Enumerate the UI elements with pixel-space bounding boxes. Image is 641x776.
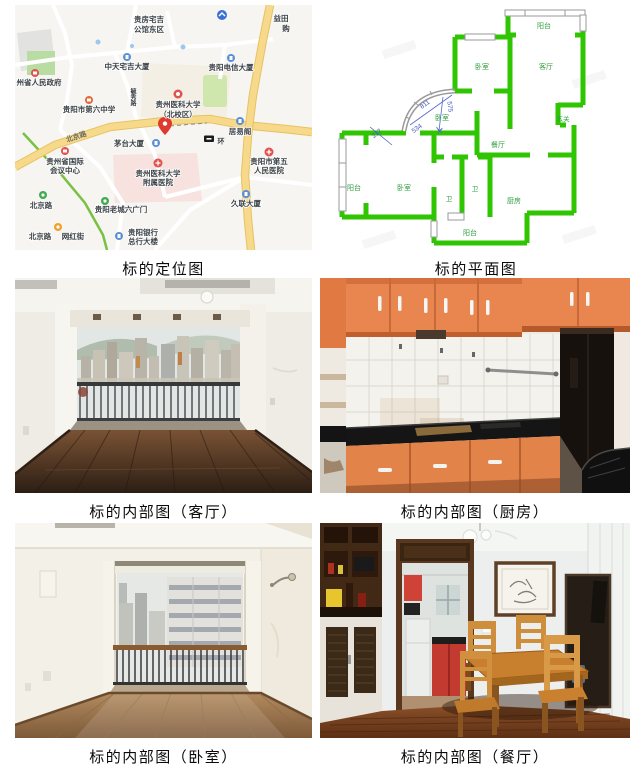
dining-room-photo [320,523,630,738]
map-label: 人民医院 [254,165,284,175]
map-label: 久联大厦 [230,198,261,208]
room-label: 卧室 [435,113,449,122]
figure-living-room: 标的内部图（客厅） [15,278,312,522]
lower-cabinets [346,436,560,493]
floorplan-image: 811 575 534 217 阳台 卧室 客厅 玄关 卧室 餐厅 阳台 卧室 … [322,5,630,250]
left-cabinet-wall [320,523,382,723]
hanging-coat [591,581,608,624]
room-label: 阳台 [537,21,551,30]
caption-bedroom: 标的内部图（卧室） [15,746,312,767]
room-label: 餐厅 [491,140,505,149]
right-wall [261,549,312,719]
map-label: 贵阳市第六中学 [63,104,116,114]
room-label: 卫 [472,185,479,193]
map-label: 会议中心 [50,165,80,175]
map-label: 贵州省国际 [46,156,84,166]
yellow-box [326,589,342,607]
left-shelf-unit [320,278,346,493]
floor [15,430,312,493]
document-page: 贵房宅吉 公馆东区 中天宅吉大厦 贵阳电信大厦 益田 购 州省人民政府 贵阳市第… [0,0,641,776]
caption-location-map: 标的定位图 [15,258,312,279]
map-label: 益田 [274,13,289,23]
living-room-photo [15,278,312,493]
figure-location-map: 贵房宅吉 公馆东区 中天宅吉大厦 贵阳电信大厦 益田 购 州省人民政府 贵阳市第… [15,5,312,279]
map-label: 贵州医科大学 [156,99,201,109]
room-label: 卧室 [397,183,411,192]
fridge [406,619,430,697]
room-label: 厨房 [507,196,521,205]
map-label: 贵阳老城六广门 [95,204,148,214]
room-label: 卧室 [475,62,489,71]
map-label: 居易阁 [229,126,252,136]
figure-bedroom: 标的内部图（卧室） [15,523,312,767]
red-cabinet-upper [404,575,422,601]
kitchen-photo [320,278,630,493]
room-label: 阳台 [463,228,477,237]
caption-kitchen: 标的内部图（厨房） [320,501,630,522]
framed-picture [496,563,554,615]
bird-icon [217,10,227,20]
map-label: 州省人民政府 [16,77,62,87]
caption-floorplan: 标的平面图 [322,258,630,279]
dimension-label: 575 [445,101,453,113]
caption-living-room: 标的内部图（客厅） [15,501,312,522]
map-label: 公馆东区 [134,24,164,34]
map-label: 贵阳银行 [128,227,158,237]
room-label: 阳台 [347,183,361,192]
map-label: 茅台大厦 [114,138,144,148]
location-map-image: 贵房宅吉 公馆东区 中天宅吉大厦 贵阳电信大厦 益田 购 州省人民政府 贵阳市第… [15,5,312,250]
room-label: 客厅 [539,62,553,71]
city-view [117,573,243,688]
figure-dining-room: 标的内部图（餐厅） [320,523,630,767]
map-label: 购 [282,23,290,33]
room-label: 卫 [446,195,453,203]
map-label: 贵阳电信大厦 [209,62,254,72]
figure-kitchen: 标的内部图（厨房） [320,278,630,522]
bedroom-photo [15,523,312,738]
figure-floorplan: 811 575 534 217 阳台 卧室 客厅 玄关 卧室 餐厅 阳台 卧室 … [322,5,630,279]
map-label: 北京路 [30,200,53,210]
caption-dining-room: 标的内部图（餐厅） [320,746,630,767]
map-label: 网红街 [62,231,85,241]
map-label: 贵阳市第五 [250,156,288,166]
map-label: 环 [218,138,225,146]
ceiling [15,523,312,549]
map-label: 总行大楼 [128,236,158,246]
map-label: 附属医院 [143,177,173,187]
map-label: 北京路 [29,231,52,241]
map-label: 中天宅吉大厦 [105,61,150,71]
map-label: （北校区） [159,109,197,119]
room-label: 玄关 [557,114,571,123]
map-label: 贵州医科大学 [136,168,181,178]
map-label: 贵房宅吉 [134,14,164,24]
